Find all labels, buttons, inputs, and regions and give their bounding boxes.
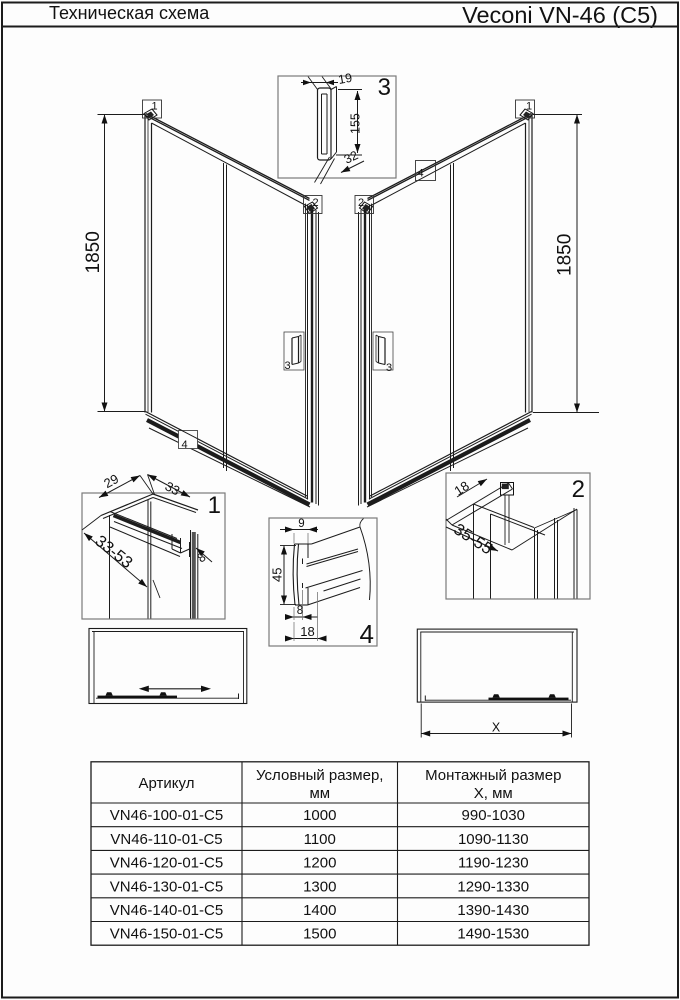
svg-text:1200: 1200 <box>303 855 336 872</box>
svg-text:1: 1 <box>208 492 221 519</box>
svg-text:4: 4 <box>417 168 423 180</box>
svg-text:8: 8 <box>297 605 303 617</box>
svg-text:1: 1 <box>151 101 157 113</box>
svg-text:45: 45 <box>270 568 285 582</box>
svg-text:VN46-150-01-C5: VN46-150-01-C5 <box>110 926 223 943</box>
svg-text:Монтажный размер: Монтажный размер <box>425 767 561 784</box>
svg-text:VN46-110-01-C5: VN46-110-01-C5 <box>110 831 222 848</box>
svg-text:1850: 1850 <box>555 234 576 276</box>
svg-text:1100: 1100 <box>304 831 336 848</box>
svg-text:VN46-100-01-C5: VN46-100-01-C5 <box>110 807 223 824</box>
svg-text:Veconi VN-46 (C5): Veconi VN-46 (C5) <box>462 2 658 28</box>
svg-text:3: 3 <box>284 360 290 372</box>
svg-text:2: 2 <box>572 476 585 503</box>
svg-text:Артикул: Артикул <box>139 775 195 792</box>
svg-text:Х, мм: Х, мм <box>474 785 513 802</box>
svg-text:990-1030: 990-1030 <box>462 807 525 824</box>
svg-text:VN46-130-01-C5: VN46-130-01-C5 <box>110 878 223 895</box>
svg-text:1090-1130: 1090-1130 <box>458 831 529 848</box>
svg-text:1390-1430: 1390-1430 <box>457 902 529 919</box>
svg-text:19: 19 <box>337 71 353 87</box>
svg-text:3: 3 <box>378 74 391 101</box>
svg-text:VN46-140-01-C5: VN46-140-01-C5 <box>110 902 223 919</box>
svg-text:1300: 1300 <box>303 878 336 895</box>
svg-text:1500: 1500 <box>303 926 336 943</box>
svg-text:155: 155 <box>349 113 363 134</box>
svg-text:4: 4 <box>360 619 374 649</box>
svg-text:Условный размер,: Условный размер, <box>256 767 383 784</box>
svg-text:мм: мм <box>309 785 330 802</box>
svg-text:1000: 1000 <box>303 807 336 824</box>
svg-text:18: 18 <box>300 624 314 639</box>
svg-text:2: 2 <box>312 197 318 209</box>
svg-text:3: 3 <box>386 362 392 374</box>
svg-text:Техническая схема: Техническая схема <box>49 3 210 23</box>
svg-text:4: 4 <box>181 439 187 451</box>
svg-text:2: 2 <box>358 197 364 209</box>
svg-text:1290-1330: 1290-1330 <box>457 878 529 895</box>
svg-text:9: 9 <box>298 518 304 530</box>
svg-text:X: X <box>492 721 501 735</box>
svg-text:1190-1230: 1190-1230 <box>458 855 529 872</box>
svg-text:1850: 1850 <box>83 231 104 273</box>
svg-text:VN46-120-01-C5: VN46-120-01-C5 <box>110 855 223 872</box>
svg-text:1400: 1400 <box>303 902 336 919</box>
svg-text:1490-1530: 1490-1530 <box>457 926 529 943</box>
svg-text:1: 1 <box>526 101 532 113</box>
